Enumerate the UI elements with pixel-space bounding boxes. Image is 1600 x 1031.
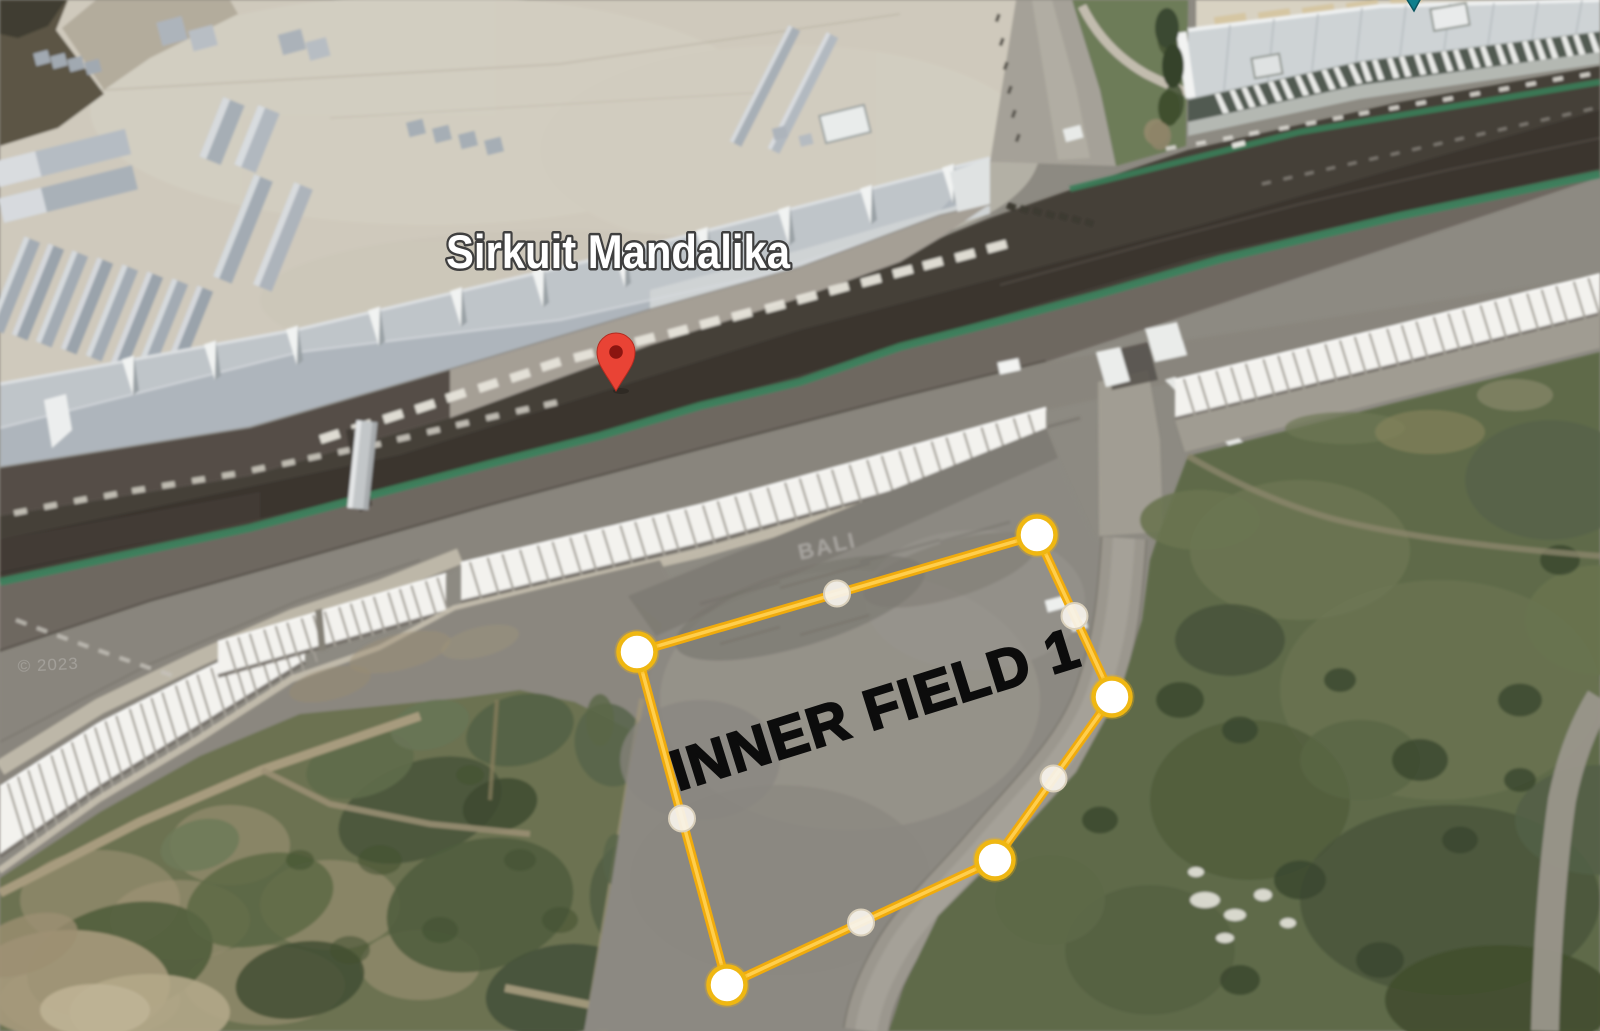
- svg-text:Sirkuit Mandalika: Sirkuit Mandalika: [446, 225, 791, 278]
- svg-text:© 2023: © 2023: [17, 654, 79, 676]
